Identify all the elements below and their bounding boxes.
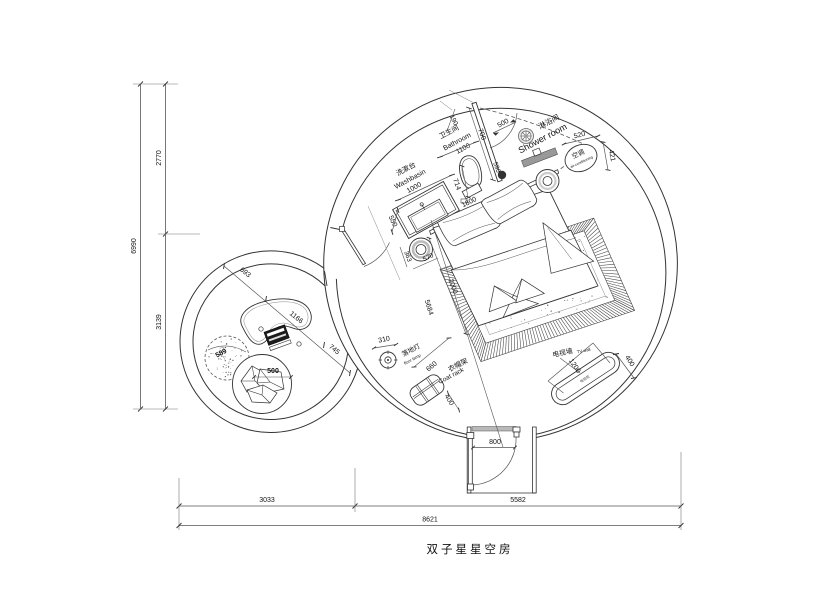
svg-text:6990: 6990 [131, 238, 138, 254]
svg-text:2770: 2770 [156, 150, 163, 166]
svg-text:800: 800 [489, 439, 501, 446]
svg-text:5582: 5582 [510, 497, 526, 504]
svg-text:3033: 3033 [259, 497, 275, 504]
svg-text:8621: 8621 [422, 517, 438, 524]
svg-text:500: 500 [267, 368, 279, 375]
svg-text:3139: 3139 [156, 314, 163, 330]
svg-text:双子星星空房: 双子星星空房 [427, 542, 514, 556]
